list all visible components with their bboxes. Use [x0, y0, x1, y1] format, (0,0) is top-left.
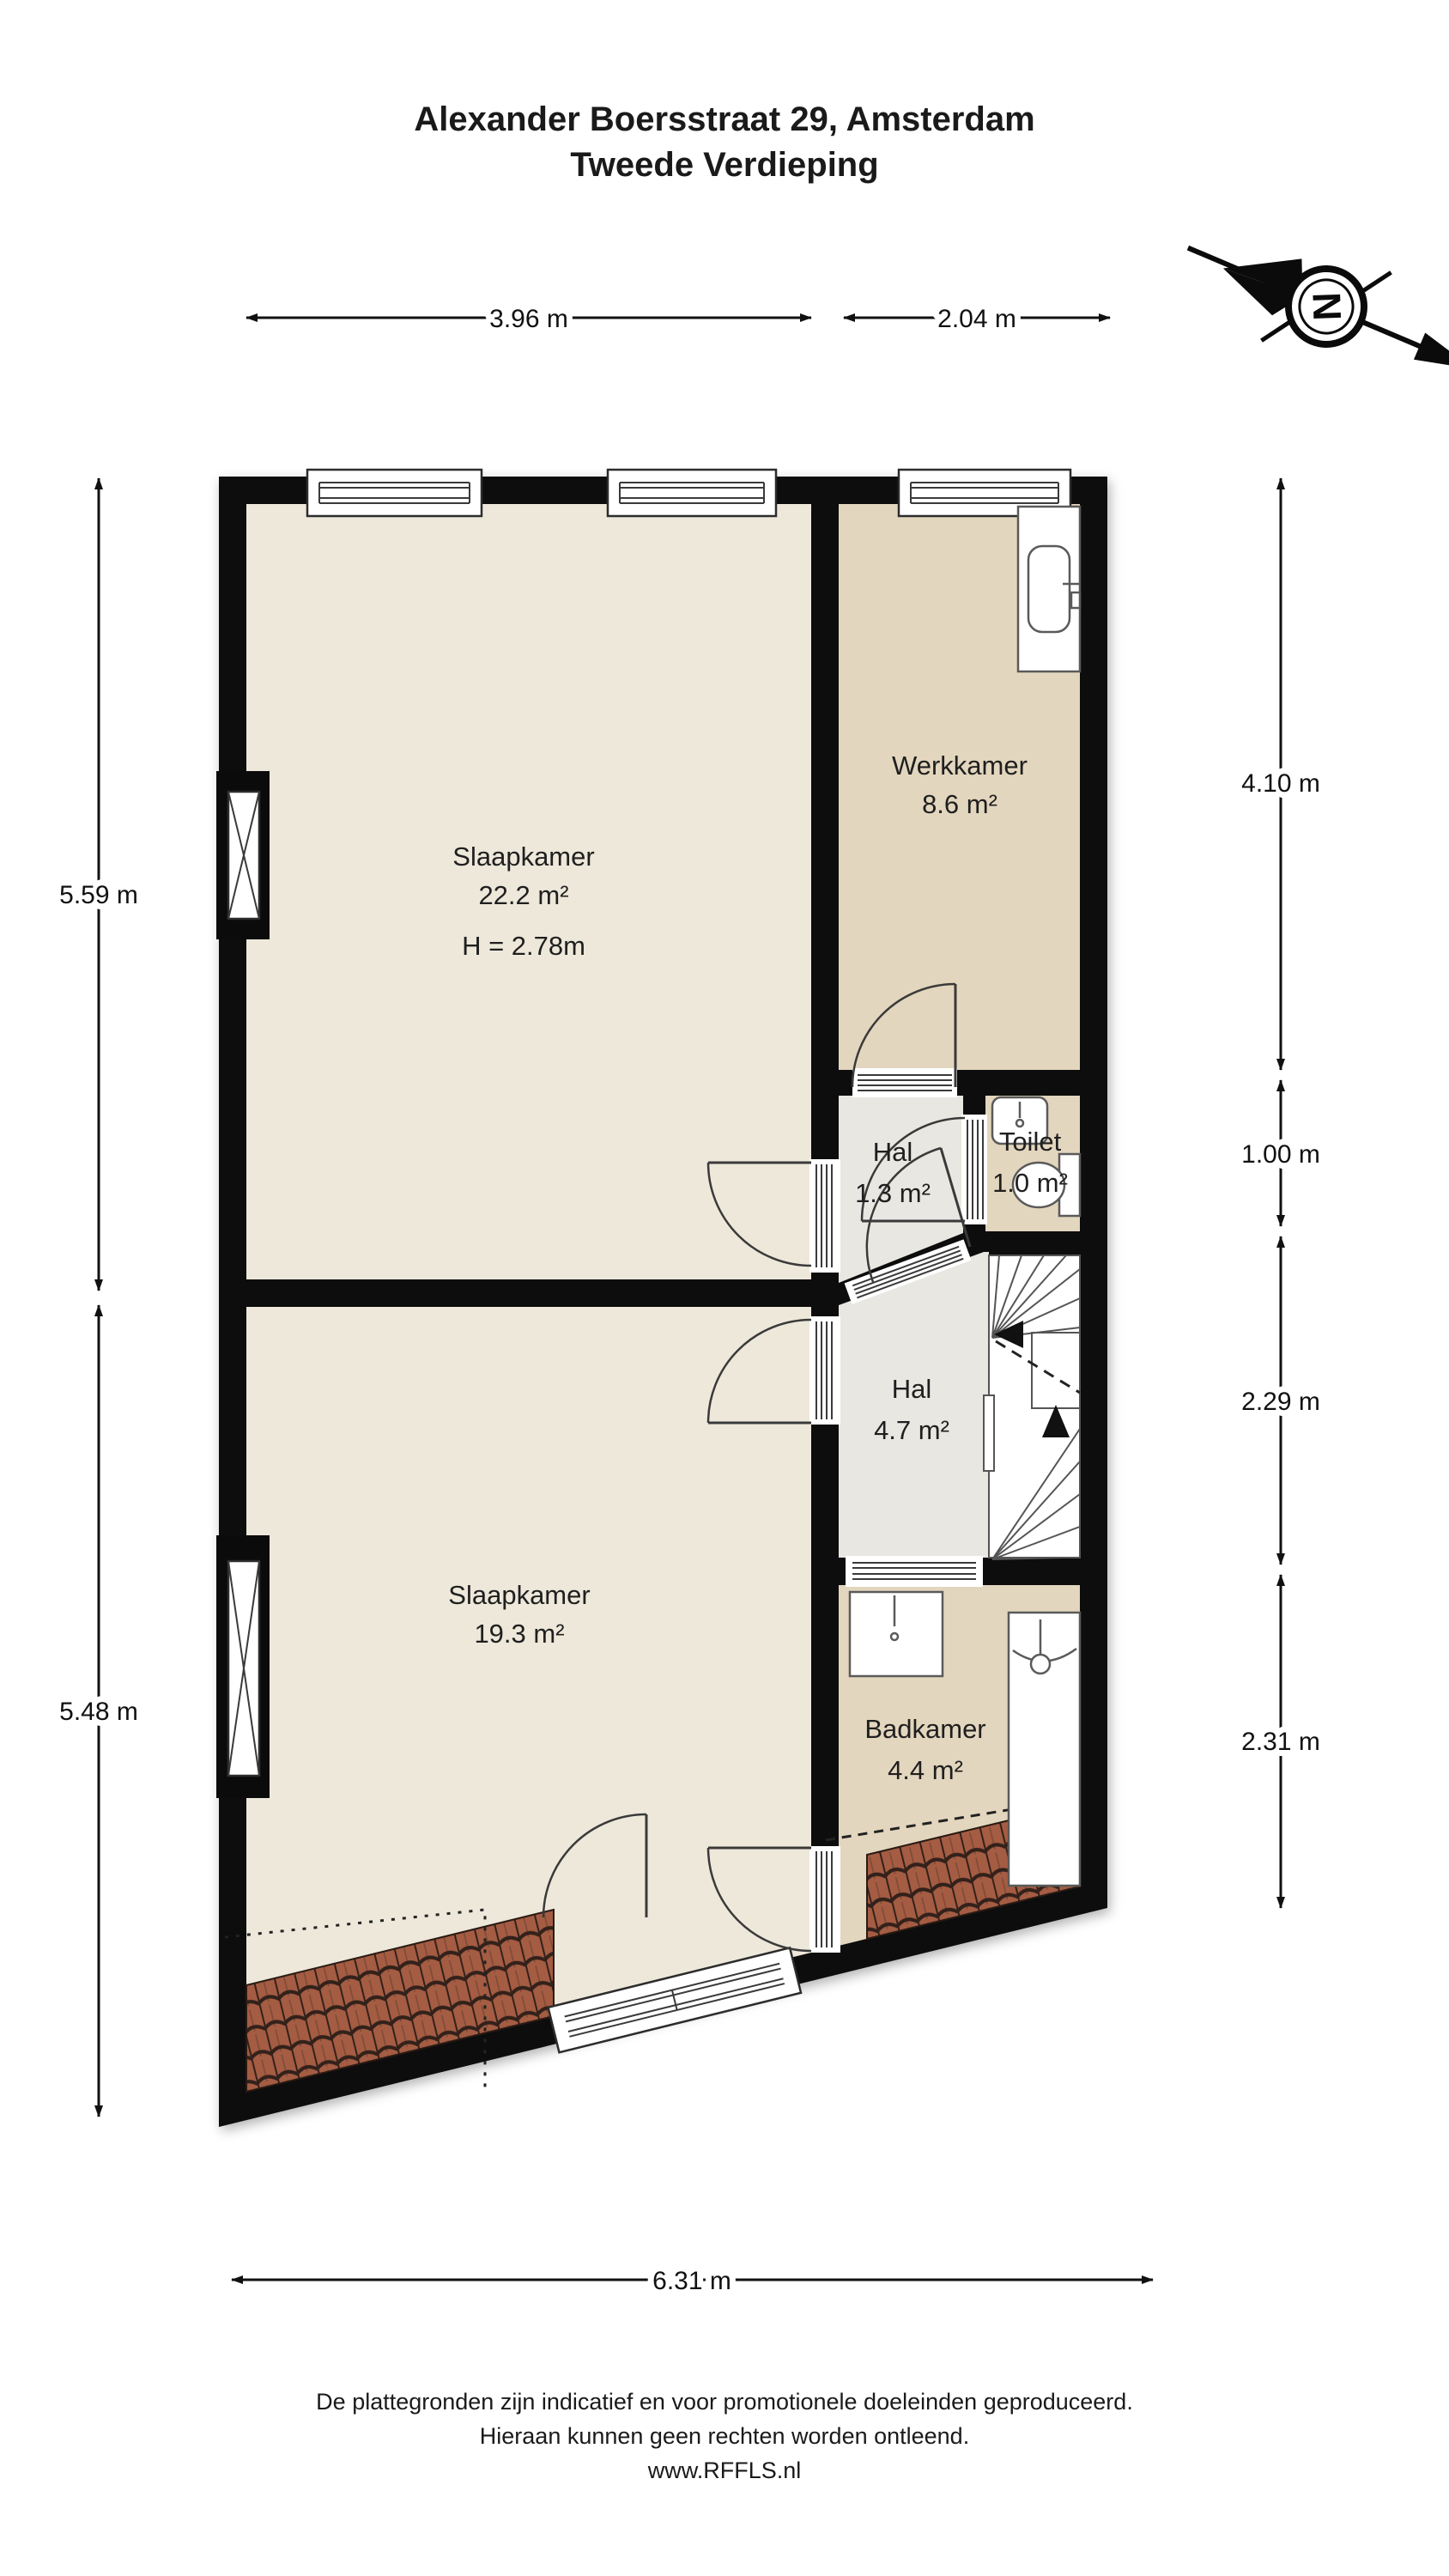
dimension-right-4: 2.31 m — [1241, 1575, 1320, 1908]
room-area-slaapkamer-boven: 22.2 m² — [478, 880, 568, 910]
room-area-toilet: 1.0 m² — [992, 1168, 1068, 1198]
dimension-bottom-1: 6.31 m — [232, 2267, 1153, 2295]
door-opening-badkamer — [846, 1556, 983, 1587]
room-name-toilet: Toilet — [999, 1127, 1062, 1157]
page-title: Alexander Boersstraat 29, Amsterdam — [414, 100, 1034, 138]
floorplan: Slaapkamer 22.2 m² H = 2.78m Werkkamer 8… — [216, 470, 1107, 2127]
dimension-label: 5.48 m — [59, 1698, 138, 1726]
room-name-slaapkamer-onder: Slaapkamer — [448, 1580, 590, 1610]
footer-disclaimer-1: De plattegronden zijn indicatief en voor… — [316, 2389, 1133, 2415]
dimension-left-2: 5.48 m — [59, 1305, 138, 2117]
room-name-badkamer: Badkamer — [864, 1714, 985, 1744]
dimension-label: 6.31 m — [652, 2267, 731, 2295]
dimension-top-1: 3.96 m — [246, 305, 811, 333]
footer-website: www.RFFLS.nl — [647, 2458, 802, 2483]
window-left-2 — [216, 1535, 270, 1798]
room-area-badkamer: 4.4 m² — [888, 1755, 963, 1785]
compass-rose-icon: N — [1166, 196, 1449, 422]
werkkamer-sink — [1018, 507, 1080, 671]
window-top-2 — [608, 470, 776, 516]
room-name-slaapkamer-boven: Slaapkamer — [452, 841, 594, 872]
dimension-label: 2.04 m — [937, 305, 1016, 333]
room-area-hal-groot: 4.7 m² — [874, 1415, 949, 1445]
room-name-hal-klein: Hal — [873, 1137, 913, 1167]
room-ceiling-slaapkamer-boven: H = 2.78m — [462, 931, 585, 961]
badkamer-shower — [1009, 1613, 1080, 1886]
compass-north-label: N — [1304, 291, 1349, 321]
room-area-werkkamer: 8.6 m² — [922, 789, 997, 819]
dimension-label: 1.00 m — [1241, 1140, 1320, 1169]
window-top-1 — [307, 470, 482, 516]
room-name-hal-groot: Hal — [892, 1374, 932, 1404]
dimension-label: 4.10 m — [1241, 769, 1320, 798]
page-subtitle: Tweede Verdieping — [570, 146, 878, 184]
stair-handrail — [984, 1395, 994, 1471]
dimension-right-1: 4.10 m — [1241, 478, 1320, 1070]
room-name-werkkamer: Werkkamer — [892, 750, 1028, 781]
window-left-1 — [216, 771, 270, 939]
dimension-right-3: 2.29 m — [1241, 1236, 1320, 1564]
floorplan-page: Alexander Boersstraat 29, Amsterdam Twee… — [0, 0, 1449, 2576]
dimension-label: 2.31 m — [1241, 1728, 1320, 1756]
room-area-hal-klein: 1.3 m² — [855, 1178, 931, 1208]
dimension-top-2: 2.04 m — [844, 305, 1110, 333]
room-area-slaapkamer-onder: 19.3 m² — [474, 1619, 564, 1649]
floorplan-canvas: Alexander Boersstraat 29, Amsterdam Twee… — [0, 0, 1449, 2576]
dimension-left-1: 5.59 m — [59, 478, 138, 1291]
dimension-right-2: 1.00 m — [1241, 1080, 1320, 1226]
dimension-label: 5.59 m — [59, 881, 138, 909]
badkamer-washbasin — [850, 1592, 943, 1676]
footer-disclaimer-2: Hieraan kunnen geen rechten worden ontle… — [480, 2423, 969, 2449]
dimension-label: 3.96 m — [489, 305, 568, 333]
dimension-label: 2.29 m — [1241, 1388, 1320, 1416]
